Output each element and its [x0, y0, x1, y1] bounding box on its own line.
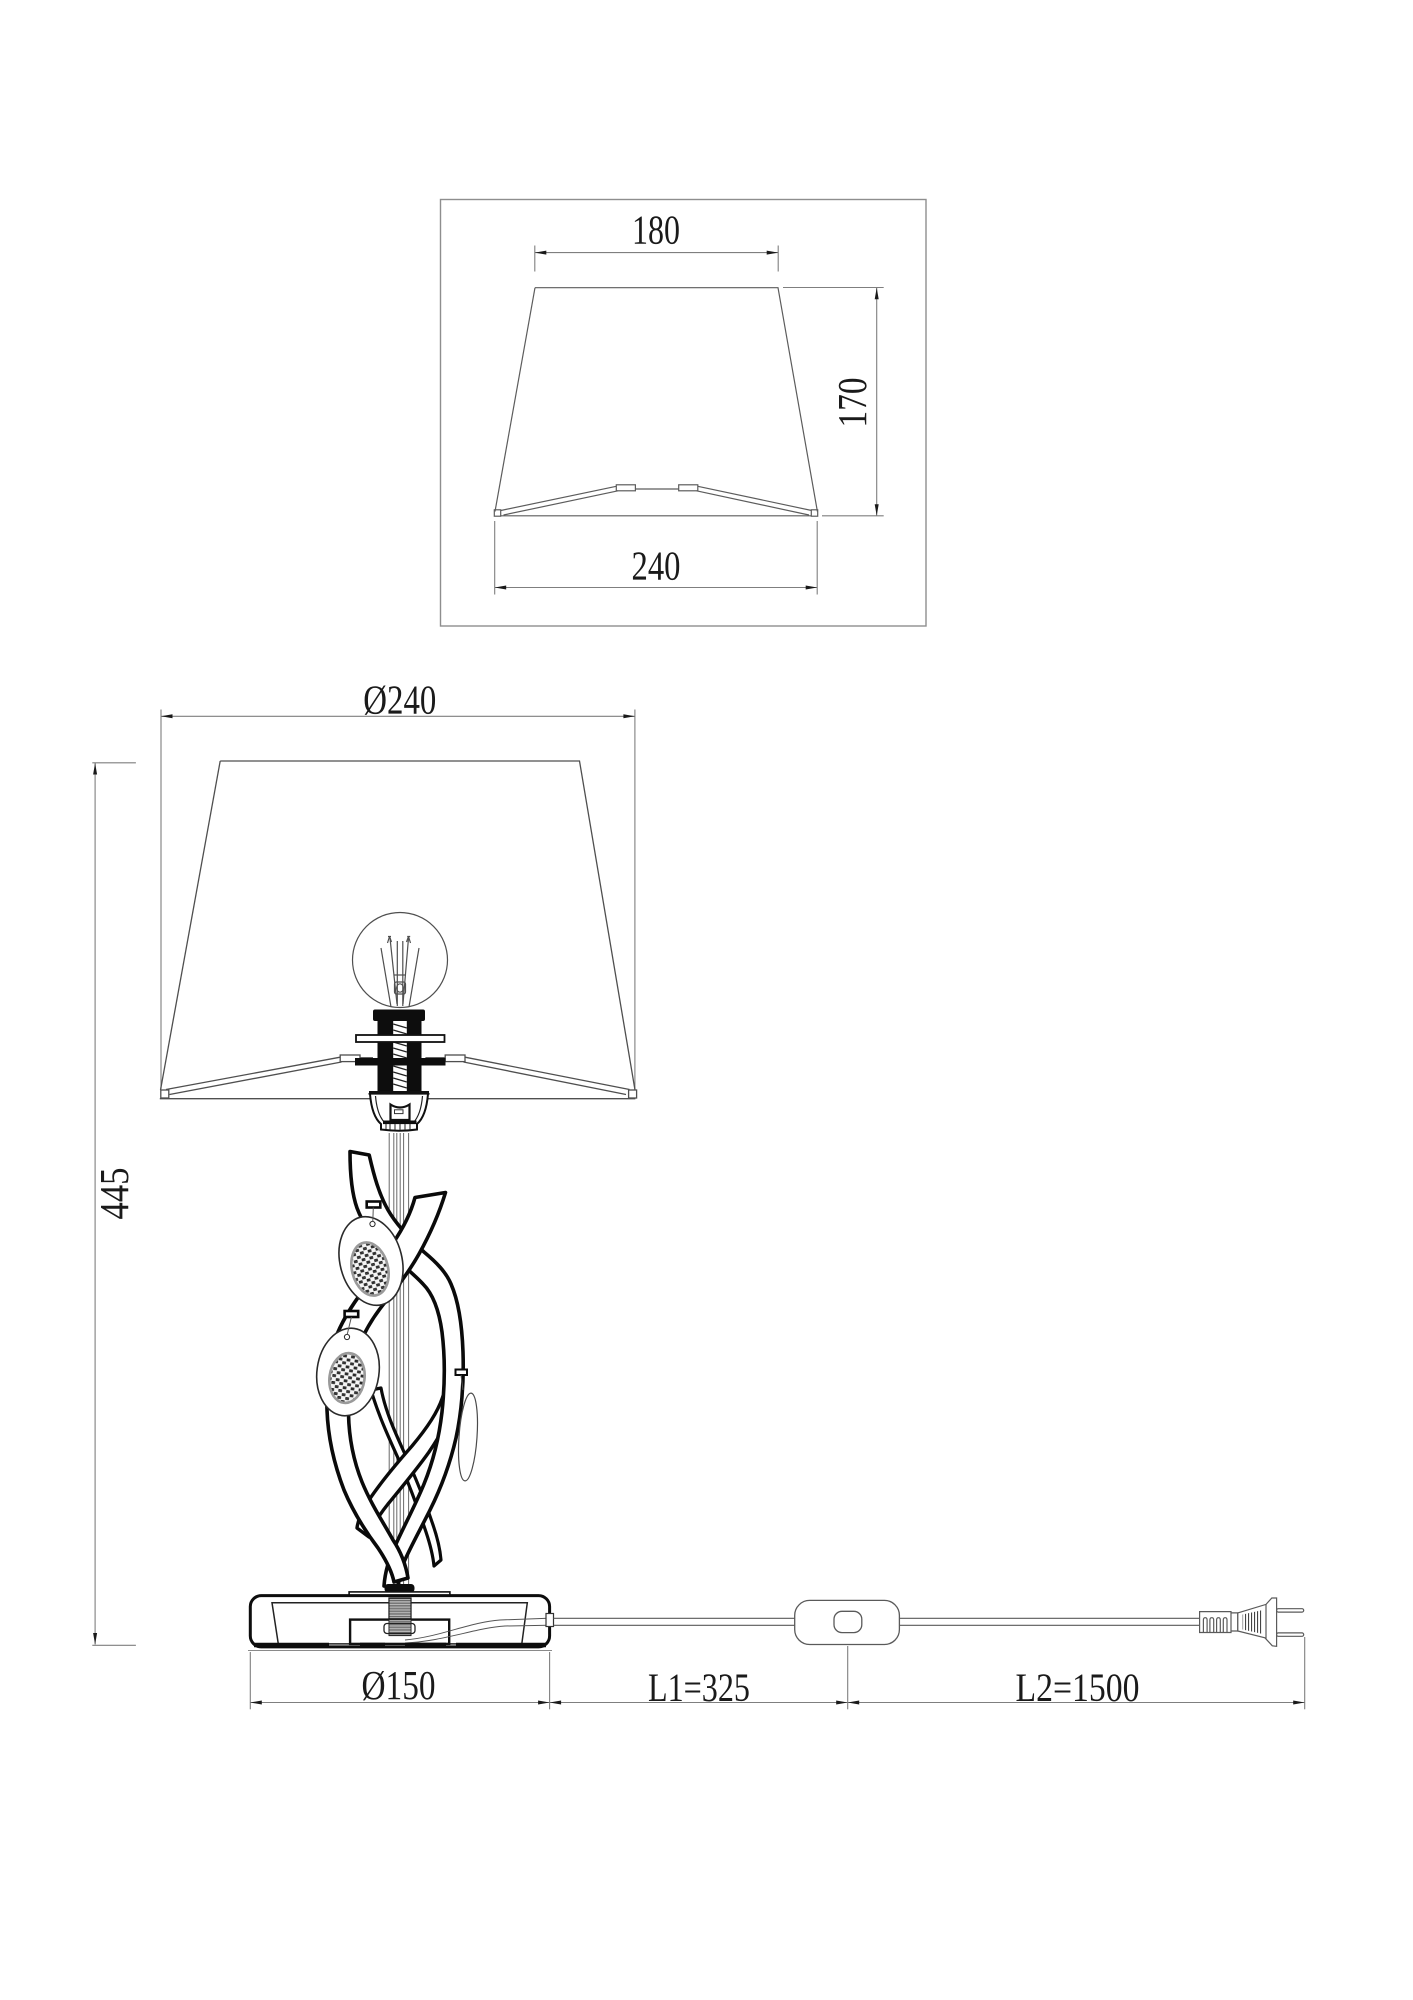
svg-text:170: 170	[829, 378, 875, 428]
svg-text:180: 180	[632, 207, 680, 253]
svg-text:L2=1500: L2=1500	[1016, 1665, 1140, 1710]
svg-text:Ø240: Ø240	[363, 677, 436, 723]
svg-text:240: 240	[632, 543, 681, 589]
svg-text:Ø150: Ø150	[362, 1662, 436, 1708]
svg-text:L1=325: L1=325	[648, 1665, 750, 1710]
svg-text:445: 445	[91, 1168, 137, 1220]
